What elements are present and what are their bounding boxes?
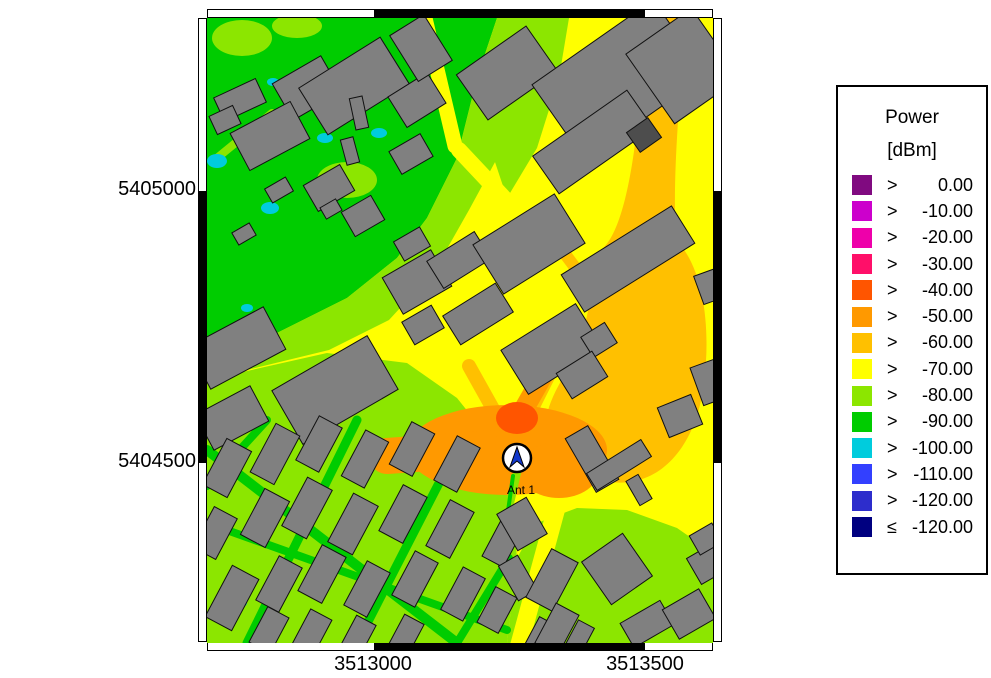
legend-box: Power [dBm] >0.00>-10.00>-20.00>-30.00>-… <box>836 85 988 575</box>
legend-entries: >0.00>-10.00>-20.00>-30.00>-40.00>-50.00… <box>838 172 986 540</box>
coverage-zone <box>317 133 333 143</box>
legend-operator: > <box>887 332 909 353</box>
scale-band-left <box>198 18 207 642</box>
legend-operator: > <box>887 306 909 327</box>
legend-entry: >-40.00 <box>838 277 986 303</box>
legend-entry: >-60.00 <box>838 330 986 356</box>
legend-threshold-value: -30.00 <box>909 254 973 275</box>
coverage-zone <box>496 402 538 434</box>
coverage-zone <box>212 20 272 56</box>
legend-operator: > <box>887 385 909 406</box>
coverage-zone <box>207 154 227 168</box>
legend-color-swatch <box>852 254 872 274</box>
y-axis-tick-label: 5405000 <box>118 178 196 201</box>
scale-band-left-black-segment <box>199 191 206 463</box>
legend-color-swatch <box>852 517 872 537</box>
legend-operator: > <box>887 490 909 511</box>
legend-operator: > <box>887 359 909 380</box>
legend-entry: >-70.00 <box>838 356 986 382</box>
scale-band-bottom-black-segment <box>374 643 645 650</box>
legend-entry: >-80.00 <box>838 382 986 408</box>
legend-threshold-value: -120.00 <box>909 517 973 538</box>
legend-entry: ≤-120.00 <box>838 514 986 540</box>
legend-entry: >-120.00 <box>838 488 986 514</box>
legend-threshold-value: -100.00 <box>909 438 973 459</box>
legend-threshold-value: -80.00 <box>909 385 973 406</box>
legend-entry: >-110.00 <box>838 461 986 487</box>
legend-operator: > <box>887 411 909 432</box>
legend-color-swatch <box>852 464 872 484</box>
legend-color-swatch <box>852 438 872 458</box>
legend-operator: > <box>887 201 909 222</box>
legend-operator: > <box>887 438 909 459</box>
x-axis-tick-label: 3513500 <box>606 653 684 676</box>
legend-color-swatch <box>852 386 872 406</box>
legend-threshold-value: -90.00 <box>909 411 973 432</box>
legend-color-swatch <box>852 333 872 353</box>
legend-threshold-value: -110.00 <box>909 464 973 485</box>
antenna-marker <box>503 444 531 472</box>
legend-operator: > <box>887 280 909 301</box>
coverage-map-figure: 5405000 5404500 3513000 3513500 Ant 1 Po… <box>0 0 991 678</box>
legend-threshold-value: -50.00 <box>909 306 973 327</box>
legend-color-swatch <box>852 307 872 327</box>
legend-operator: > <box>887 175 909 196</box>
legend-entry: >-50.00 <box>838 303 986 329</box>
legend-title-line1: Power <box>838 101 986 134</box>
legend-color-swatch <box>852 412 872 432</box>
legend-threshold-value: 0.00 <box>909 175 973 196</box>
scale-band-top <box>207 9 713 18</box>
legend-threshold-value: -40.00 <box>909 280 973 301</box>
coverage-zone <box>241 304 253 312</box>
legend-title: Power [dBm] <box>838 87 986 167</box>
legend-threshold-value: -10.00 <box>909 201 973 222</box>
scale-band-bottom <box>207 642 713 651</box>
legend-threshold-value: -70.00 <box>909 359 973 380</box>
legend-entry: >-90.00 <box>838 409 986 435</box>
legend-color-swatch <box>852 491 872 511</box>
legend-entry: >0.00 <box>838 172 986 198</box>
x-axis-tick-label: 3513000 <box>334 653 412 676</box>
y-axis-tick-label: 5404500 <box>118 450 196 473</box>
legend-color-swatch <box>852 228 872 248</box>
legend-threshold-value: -60.00 <box>909 332 973 353</box>
legend-operator: > <box>887 254 909 275</box>
legend-color-swatch <box>852 280 872 300</box>
scale-band-right <box>713 18 722 642</box>
legend-color-swatch <box>852 359 872 379</box>
legend-color-swatch <box>852 201 872 221</box>
legend-threshold-value: -120.00 <box>909 490 973 511</box>
legend-entry: >-30.00 <box>838 251 986 277</box>
coverage-map: Ant 1 <box>207 18 713 643</box>
legend-entry: >-100.00 <box>838 435 986 461</box>
legend-operator: > <box>887 227 909 248</box>
antenna-label: Ant 1 <box>507 483 535 497</box>
legend-title-line2: [dBm] <box>838 134 986 167</box>
legend-entry: >-10.00 <box>838 198 986 224</box>
legend-operator: ≤ <box>887 517 909 538</box>
coverage-zone <box>371 128 387 138</box>
legend-threshold-value: -20.00 <box>909 227 973 248</box>
scale-band-top-black-segment <box>374 10 645 17</box>
scale-band-right-black-segment <box>714 191 721 463</box>
legend-entry: >-20.00 <box>838 225 986 251</box>
coverage-zone <box>261 202 279 214</box>
legend-operator: > <box>887 464 909 485</box>
legend-color-swatch <box>852 175 872 195</box>
